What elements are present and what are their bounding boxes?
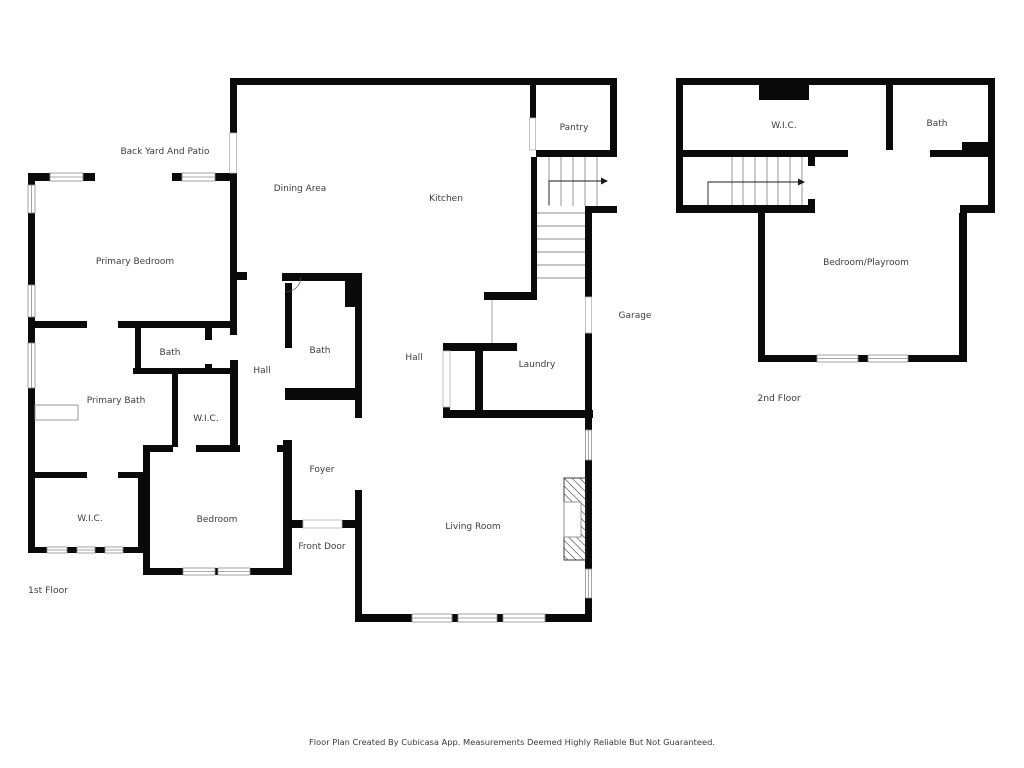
fireplace (564, 478, 586, 560)
bathtub (35, 405, 78, 420)
wall-segment (342, 520, 362, 528)
wall-segment (908, 355, 967, 362)
wall-segment (355, 490, 362, 622)
wall-segment (988, 85, 995, 213)
room-label-hall-mid: Hall (405, 353, 422, 363)
wall-segment (355, 614, 412, 622)
room-label-pantry: Pantry (560, 123, 589, 133)
footer-disclaimer: Floor Plan Created By Cubicasa App. Meas… (309, 737, 715, 747)
wall-segment (283, 440, 292, 575)
wall-segment (808, 199, 815, 213)
wall-segment (143, 445, 173, 452)
second-floor-title: 2nd Floor (757, 393, 801, 404)
wall-segment (443, 410, 593, 418)
first-floor-stairs (537, 157, 608, 278)
fireplace-firebox (564, 502, 581, 537)
wall-segment (28, 388, 35, 553)
room-label-wic-front: W.I.C. (77, 514, 102, 524)
stair-direction-arrow (601, 178, 608, 185)
wall-segment (930, 150, 962, 157)
wall-segment (237, 272, 247, 280)
wall-segment (28, 321, 87, 328)
front-door-opening (303, 520, 342, 528)
room-label-dining-area: Dining Area (274, 184, 327, 194)
wall-segment (759, 85, 809, 100)
wall-segment (135, 328, 141, 374)
outdoor-label: Back Yard And Patio (120, 147, 210, 157)
wall-segment (172, 374, 178, 447)
wall-segment (536, 150, 617, 157)
wall-segment (67, 547, 77, 553)
wall-segment (285, 283, 292, 348)
room-label-wic-mid: W.I.C. (193, 414, 218, 424)
wall-segment (282, 273, 345, 281)
wall-segment (959, 213, 967, 362)
wall-segment (545, 614, 592, 622)
garage-door (586, 297, 592, 333)
room-label-bedroom: Bedroom (197, 515, 238, 525)
room-label-garage: Garage (619, 311, 652, 321)
wall-segment (443, 343, 517, 351)
wall-segment (886, 85, 893, 150)
first-floor-fixtures (35, 405, 586, 560)
wall-segment (28, 213, 35, 285)
wall-segment (83, 173, 95, 181)
wall-segment (143, 568, 183, 575)
room-label-laundry: Laundry (519, 360, 556, 370)
wall-segment (497, 614, 503, 622)
wall-segment (585, 206, 617, 213)
wall-segment (484, 292, 537, 300)
room-label-foyer: Foyer (310, 465, 335, 475)
room-label-hall-left: Hall (253, 366, 270, 376)
wall-segment (355, 307, 362, 418)
room-label-bath-left: Bath (160, 348, 181, 358)
wall-segment (172, 173, 182, 181)
wall-segment (960, 205, 995, 213)
floor-plan-canvas: Back Yard And Patio Dining Area Kitchen … (0, 0, 1024, 768)
wall-segment (683, 150, 848, 157)
stair-walk-line (549, 181, 601, 205)
wall-segment (205, 328, 212, 340)
wall-segment (808, 156, 815, 166)
room-label-wic-2nd: W.I.C. (771, 121, 796, 131)
room-label-bath-mid: Bath (310, 346, 331, 356)
wall-segment (95, 547, 105, 553)
wall-segment (610, 85, 617, 155)
room-label-primary-bedroom: Primary Bedroom (96, 257, 174, 267)
wall-segment (530, 85, 536, 118)
wall-segment (758, 213, 765, 362)
room-label-front-door: Front Door (298, 542, 346, 552)
wall-segment (475, 351, 483, 417)
stair-direction-arrow (798, 179, 805, 186)
room-label-living-room: Living Room (445, 522, 500, 532)
first-floor-plan: Back Yard And Patio Dining Area Kitchen … (28, 78, 652, 622)
wall-segment (123, 547, 145, 553)
wall-segment (118, 321, 237, 328)
wall-segment (196, 445, 240, 452)
wall-segment (215, 173, 237, 181)
room-label-primary-bath: Primary Bath (87, 396, 146, 406)
room-label-bedroom-playroom: Bedroom/Playroom (823, 258, 909, 268)
wall-segment (28, 317, 35, 343)
room-label-bath-2nd: Bath (927, 119, 948, 129)
patio-door (230, 133, 237, 173)
second-floor-plan: W.I.C. Bath Bedroom/Playroom 2nd Floor (676, 78, 995, 404)
wall-segment (531, 157, 537, 293)
wall-segment (345, 273, 362, 307)
floor-plan-page: Back Yard And Patio Dining Area Kitchen … (0, 0, 1024, 768)
wall-segment (676, 78, 995, 85)
wall-segment (230, 181, 237, 335)
room-label-kitchen: Kitchen (429, 194, 463, 204)
wall-segment (230, 85, 237, 133)
wall-segment (858, 355, 868, 362)
wall-segment (292, 520, 303, 528)
wall-segment (676, 85, 683, 213)
wall-segment (452, 614, 458, 622)
wall-segment (133, 368, 233, 374)
stair-walk-line (708, 182, 798, 205)
wall-segment (285, 388, 362, 400)
pantry-door (530, 118, 536, 150)
wall-segment (215, 568, 218, 575)
wall-segment (676, 205, 813, 213)
wall-segment (230, 78, 617, 85)
closet-door (443, 351, 450, 407)
wall-segment (758, 355, 817, 362)
wall-segment (28, 547, 47, 553)
wall-segment (585, 213, 592, 297)
wall-segment (28, 173, 35, 185)
first-floor-title: 1st Floor (28, 585, 68, 596)
wall-segment (118, 472, 145, 478)
second-floor-stairs (708, 157, 805, 205)
wall-segment (28, 472, 87, 478)
